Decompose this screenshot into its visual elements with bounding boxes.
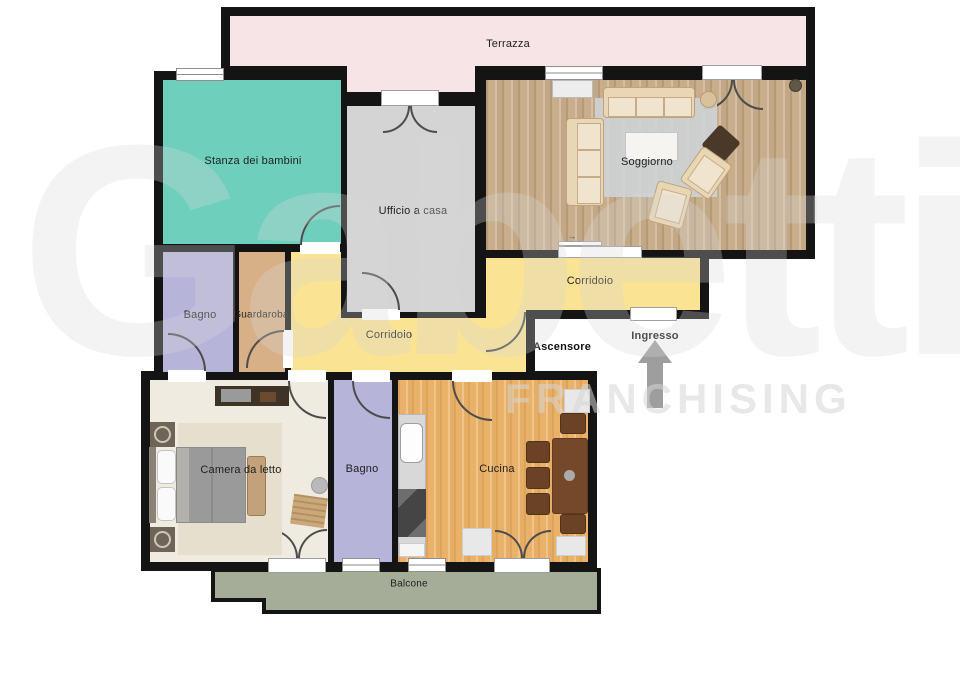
kitchen-cart — [462, 528, 492, 556]
sofa — [603, 87, 695, 118]
window — [342, 558, 380, 572]
sliding-door-leaf — [558, 241, 602, 246]
lamp — [154, 426, 171, 443]
chair — [526, 493, 550, 515]
sliding-door-opening — [558, 246, 642, 258]
door-opening — [702, 65, 762, 80]
stove — [398, 489, 426, 537]
label-camera: Camera da letto — [200, 464, 281, 476]
entrance-opening — [630, 307, 677, 321]
window — [176, 68, 224, 81]
door-opening — [362, 309, 400, 320]
sliding-door-arrow-icon: → — [567, 231, 576, 241]
label-bagno-sud: Bagno — [346, 463, 379, 475]
label-cucina: Cucina — [479, 463, 514, 475]
appliance — [399, 543, 425, 557]
chair — [526, 441, 550, 463]
room-corridoio-strip — [291, 252, 341, 322]
chair — [526, 467, 550, 489]
window — [545, 66, 603, 80]
label-bagno-nord: Bagno — [184, 309, 217, 321]
sofa — [566, 118, 604, 206]
door-opening — [283, 330, 293, 368]
door-opening — [268, 558, 326, 573]
bed-blanket — [176, 447, 246, 523]
kitchen-cabinet — [564, 389, 590, 413]
label-ingresso: Ingresso — [631, 330, 678, 342]
label-corridoio-est: Corridoio — [567, 275, 613, 287]
door-opening — [381, 90, 439, 106]
label-stanza: Stanza dei bambini — [204, 155, 301, 167]
kitchen-cabinet — [556, 536, 586, 556]
pillow — [157, 450, 176, 484]
label-terrazza: Terrazza — [486, 38, 530, 50]
pouf — [311, 477, 328, 494]
room-balcone-lower — [266, 598, 597, 610]
table-knob — [564, 470, 575, 481]
pillow — [157, 487, 176, 521]
label-ufficio: Ufficio a casa — [379, 205, 448, 217]
chair — [560, 514, 586, 534]
label-ascensore: Ascensore — [533, 341, 591, 353]
window — [408, 558, 446, 572]
entrance-arrow-shaft — [647, 362, 663, 408]
label-balcone: Balcone — [390, 579, 428, 590]
label-soggiorno: Soggiorno — [621, 156, 673, 168]
bed-headboard — [149, 447, 156, 523]
room-terrazza-tab — [347, 16, 475, 92]
plant — [789, 79, 802, 92]
lamp — [154, 531, 171, 548]
door-opening — [168, 370, 206, 382]
round-table — [700, 91, 717, 108]
label-guardaroba: Guardaroba — [233, 310, 288, 321]
side-table — [552, 80, 593, 98]
sink — [400, 423, 423, 463]
chair — [560, 413, 586, 434]
tv-console — [215, 386, 289, 406]
door-opening — [494, 558, 550, 573]
entrance-arrow-icon — [638, 340, 672, 363]
label-corridoio-sud: Corridoio — [366, 329, 412, 341]
small-rug — [290, 494, 328, 528]
floor-plan: → — [0, 0, 960, 679]
